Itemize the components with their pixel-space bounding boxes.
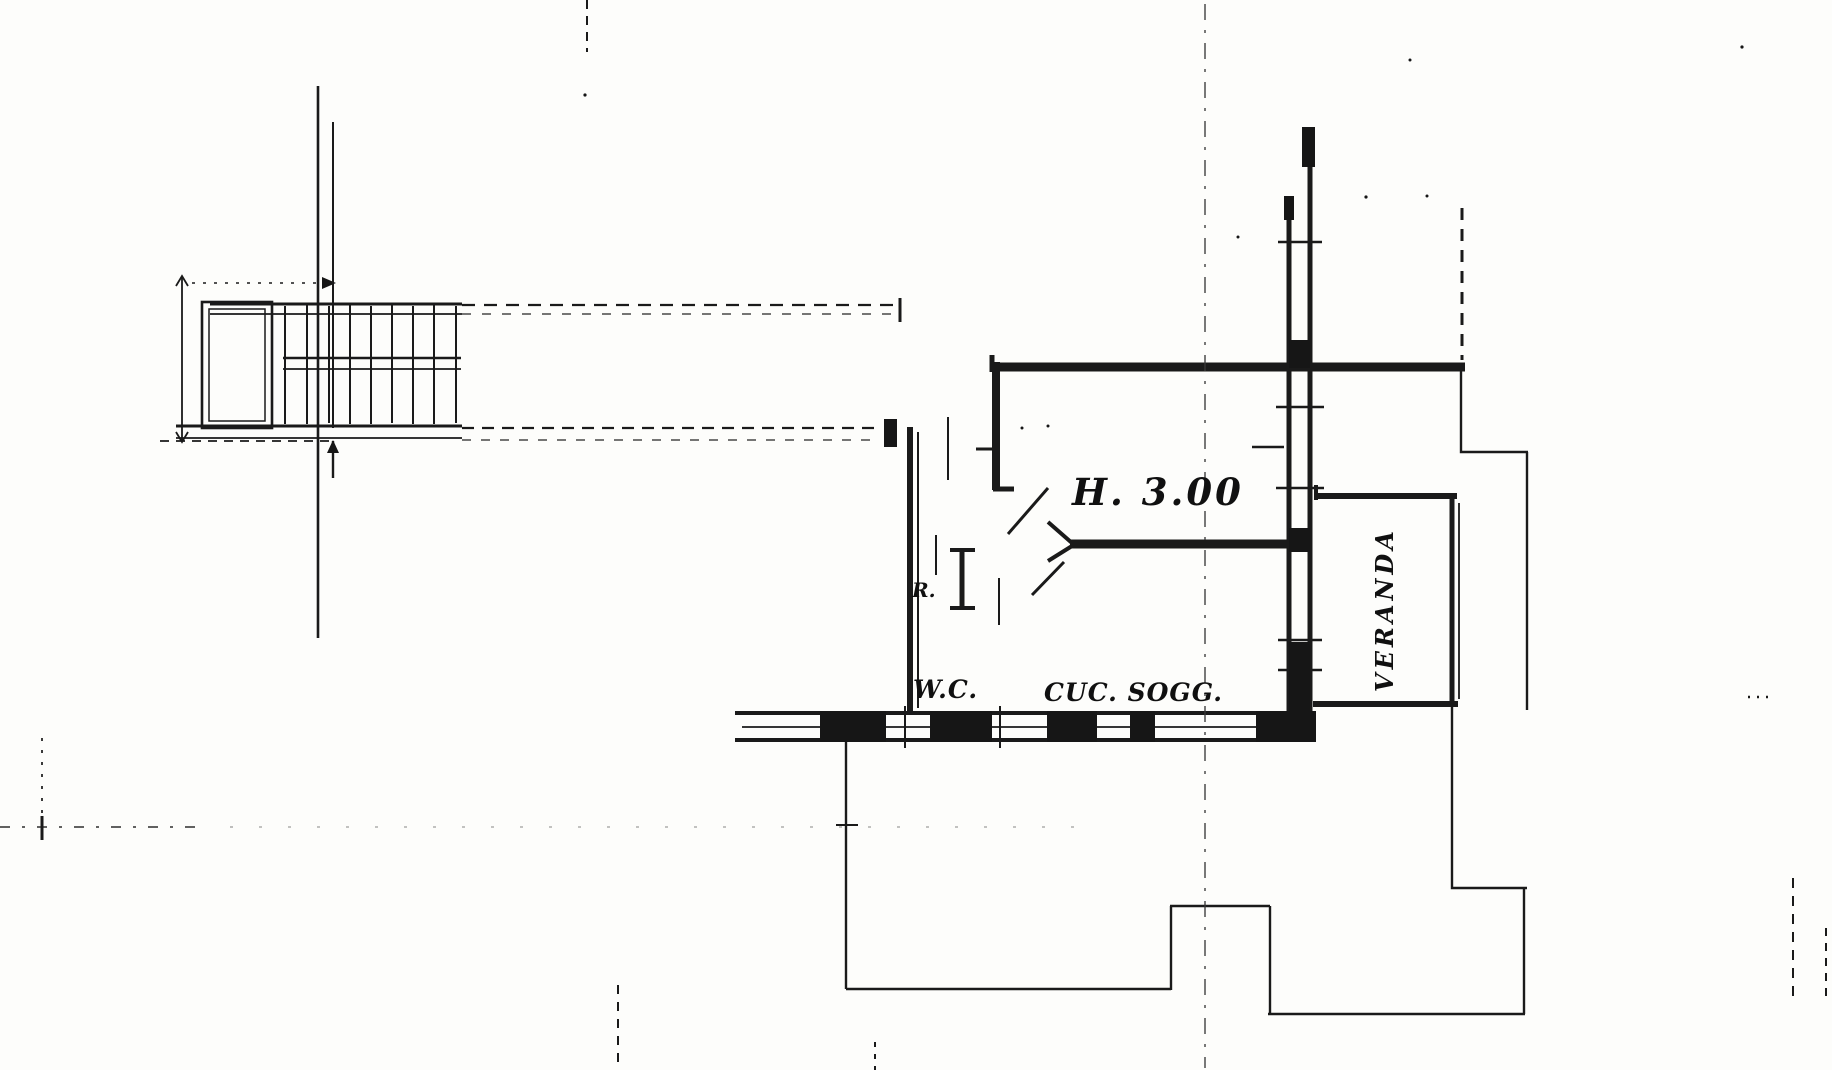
wall-pier — [820, 711, 886, 742]
wall-pier — [930, 711, 992, 742]
boundary-step-mid-right — [1452, 706, 1527, 888]
building-walls — [735, 127, 1465, 748]
wc-label: W.C. — [913, 675, 978, 704]
chimney-fill — [1302, 127, 1315, 167]
outer-boundary — [836, 208, 1528, 1014]
wall-pier — [1256, 711, 1316, 742]
wall-fill-segment — [1289, 528, 1310, 552]
stair-landing-outer — [202, 302, 272, 428]
floor-plan-sheet: H. 3.00 W.C. CUC. SOGG. R. VERANDA — [0, 0, 1832, 1070]
reference-mark-label: R. — [911, 578, 936, 602]
stair-landing-inner — [209, 309, 265, 421]
scan-specks — [583, 45, 1743, 429]
height-annotation-label: H. 3.00 — [1071, 470, 1244, 514]
staircase — [160, 86, 900, 638]
chimney-fill — [1284, 196, 1294, 220]
ramp-end-cap-bottom — [884, 419, 897, 447]
wall-fill-segment — [1289, 642, 1310, 712]
door-swing-line — [1008, 488, 1048, 534]
wall-pier — [1130, 711, 1155, 742]
wall-fill-segment — [1289, 340, 1310, 368]
boundary-step-top-right — [1461, 367, 1528, 452]
dimension-arrow-bottom — [327, 440, 339, 453]
kitchen-living-label: CUC. SOGG. — [1044, 678, 1223, 707]
door-swing-line — [1032, 562, 1064, 595]
wall-pier — [1047, 711, 1097, 742]
room-labels: H. 3.00 W.C. CUC. SOGG. R. VERANDA — [911, 470, 1399, 707]
veranda-label: VERANDA — [1370, 527, 1399, 692]
floor-plan-drawing: H. 3.00 W.C. CUC. SOGG. R. VERANDA — [0, 0, 1832, 1070]
